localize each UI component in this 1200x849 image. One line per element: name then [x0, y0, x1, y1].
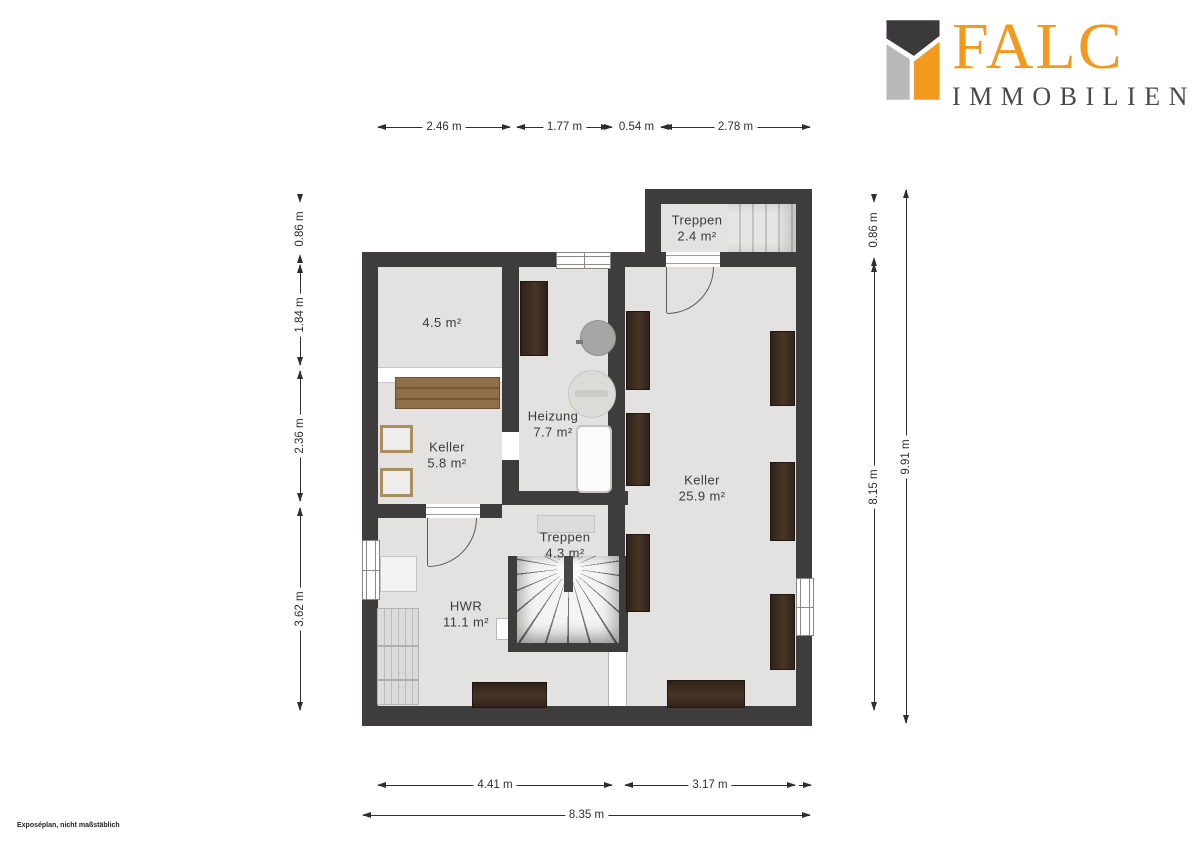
boiler-small-valve — [576, 340, 583, 344]
boiler-large-bar — [575, 390, 608, 397]
room-label-hwr: HWR11.1 m² — [443, 598, 489, 629]
heizung-tank — [576, 425, 612, 493]
wall-top-right — [717, 252, 796, 267]
door-opening-keller-gross — [663, 252, 723, 267]
upper-stairs-treads — [728, 204, 796, 252]
footnote-disclaimer: Exposéplan, nicht maßstäblich — [17, 822, 120, 829]
dim-top-4: 2.78 m — [661, 121, 810, 133]
shelf-right-2 — [770, 462, 795, 541]
dim-left-3: 2.36 m — [294, 371, 306, 501]
window-right — [796, 578, 814, 636]
dim-top-2: 1.77 m — [517, 121, 612, 133]
window-top — [556, 252, 611, 269]
passage-hwr-keller — [608, 650, 627, 706]
stairbox-wall-bottom — [508, 643, 628, 652]
heizung-radiator — [520, 281, 548, 356]
stairbox-wall-left — [508, 556, 517, 652]
door-keller58-heizung — [502, 428, 519, 464]
room-label-abstell: 4.5 m² — [422, 315, 461, 331]
logo-subtitle-text: IMMOBILIEN — [952, 82, 1196, 112]
wall-top-mid — [609, 252, 663, 267]
shelf-left-1 — [626, 311, 650, 390]
storage-box-2 — [380, 468, 413, 497]
dim-right-inner-1: 0.86 m — [868, 205, 880, 255]
wall-stairblock-left — [645, 204, 661, 252]
room-label-keller-gross: Keller25.9 m² — [679, 472, 726, 503]
dim-left-2: 1.84 m — [294, 265, 306, 365]
dim-right-outer: 9.91 m — [900, 190, 912, 723]
window-left — [362, 540, 380, 600]
room-label-keller-klein: Keller5.8 m² — [427, 439, 466, 470]
shelf-right-3 — [770, 594, 795, 670]
shelf-bottom — [667, 680, 745, 708]
dim-left-4: 3.62 m — [294, 508, 306, 710]
dim-bottom-1: 4.41 m — [378, 779, 612, 791]
dim-top-3: 0.54 m — [612, 121, 661, 133]
floorplan-page: FALC IMMOBILIEN — [0, 0, 1200, 849]
wall-bottom — [362, 706, 812, 726]
wall-stairblock-top — [645, 189, 812, 204]
dim-bottom-stub — [799, 779, 811, 791]
hwr-appliance — [380, 556, 417, 592]
wall-right-upper — [796, 189, 812, 578]
boiler-small — [580, 320, 616, 356]
dim-left-1: 0.86 m — [294, 205, 306, 252]
workbench-table — [395, 377, 500, 409]
wall-keller58-bottom-left — [362, 504, 423, 518]
wall-top-left — [362, 252, 556, 267]
logo-left-wall-shape — [886, 44, 909, 100]
storage-box-1 — [380, 425, 413, 453]
dim-bottom-2: 3.17 m — [625, 779, 795, 791]
falc-house-icon — [884, 16, 942, 104]
falc-logo: FALC IMMOBILIEN — [884, 16, 1196, 112]
shelf-right-1 — [770, 331, 795, 406]
door-opening-hwr — [423, 504, 483, 518]
stair-newel — [564, 556, 573, 592]
logo-brand-text: FALC — [952, 16, 1196, 78]
wall-heizung-left-upper — [502, 267, 519, 428]
shelf-left-3 — [626, 534, 650, 612]
wall-left-lower — [362, 598, 378, 706]
dim-top-1: 2.46 m — [378, 121, 510, 133]
dim-right-inner-2: 8.15 m — [868, 264, 880, 710]
hwr-shelving — [377, 608, 419, 705]
room-label-treppen-ug: Treppen4.3 m² — [540, 529, 591, 560]
room-label-heizung: Heizung7.7 m² — [528, 408, 579, 439]
dim-total-width: 8.35 m — [363, 809, 810, 821]
room-label-treppen-og: Treppen2.4 m² — [672, 212, 723, 243]
shelf-left-2 — [626, 413, 650, 486]
hwr-sideboard — [472, 682, 547, 708]
wall-left-upper — [362, 267, 378, 540]
